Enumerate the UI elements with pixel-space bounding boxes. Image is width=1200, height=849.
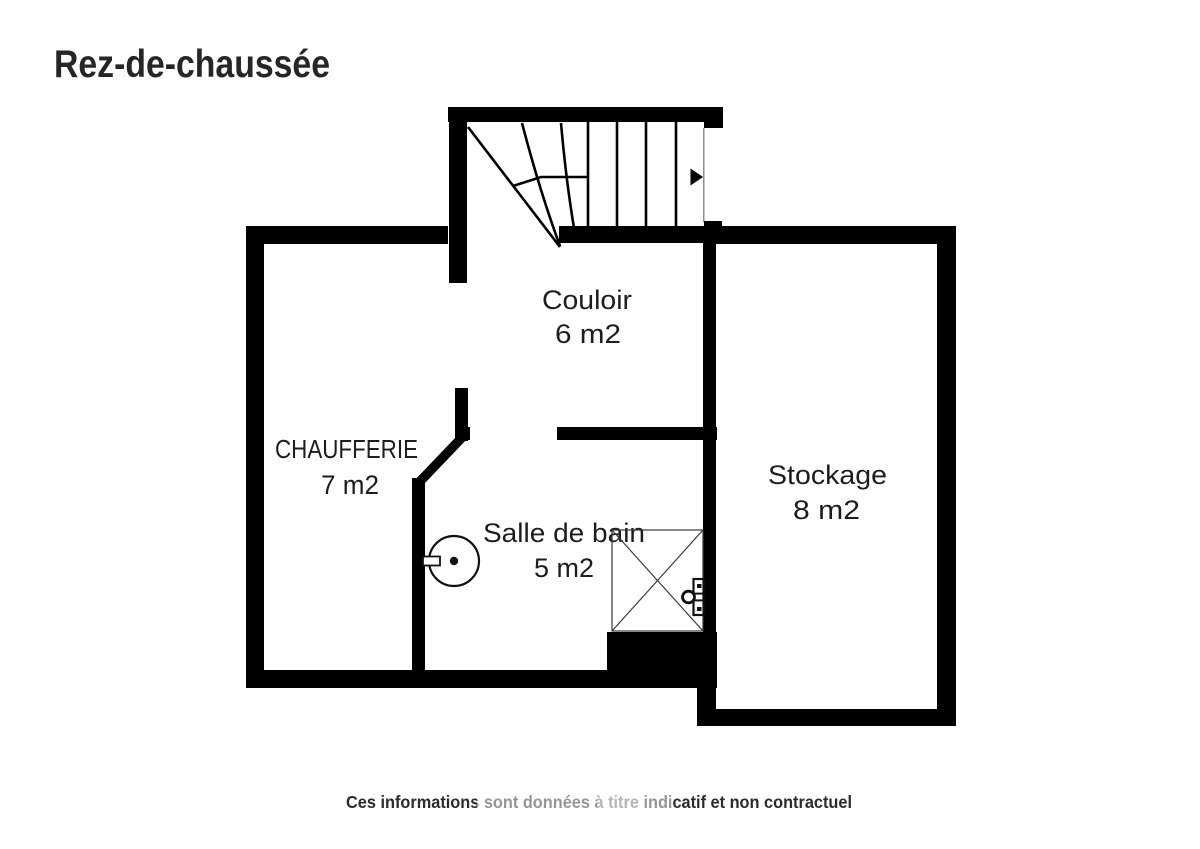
svg-text:Rez-de-chaussée: Rez-de-chaussée [54,43,330,86]
svg-text:Salle de bain: Salle de bain [483,518,645,548]
svg-text:8 m2: 8 m2 [793,495,860,525]
svg-text:CHAUFFERIE: CHAUFFERIE [275,434,418,464]
svg-text:7 m2: 7 m2 [321,470,379,500]
svg-text:Stockage: Stockage [768,460,887,490]
svg-text:Couloir: Couloir [542,285,632,315]
svg-text:6 m2: 6 m2 [555,319,621,349]
svg-text:5 m2: 5 m2 [534,553,594,583]
